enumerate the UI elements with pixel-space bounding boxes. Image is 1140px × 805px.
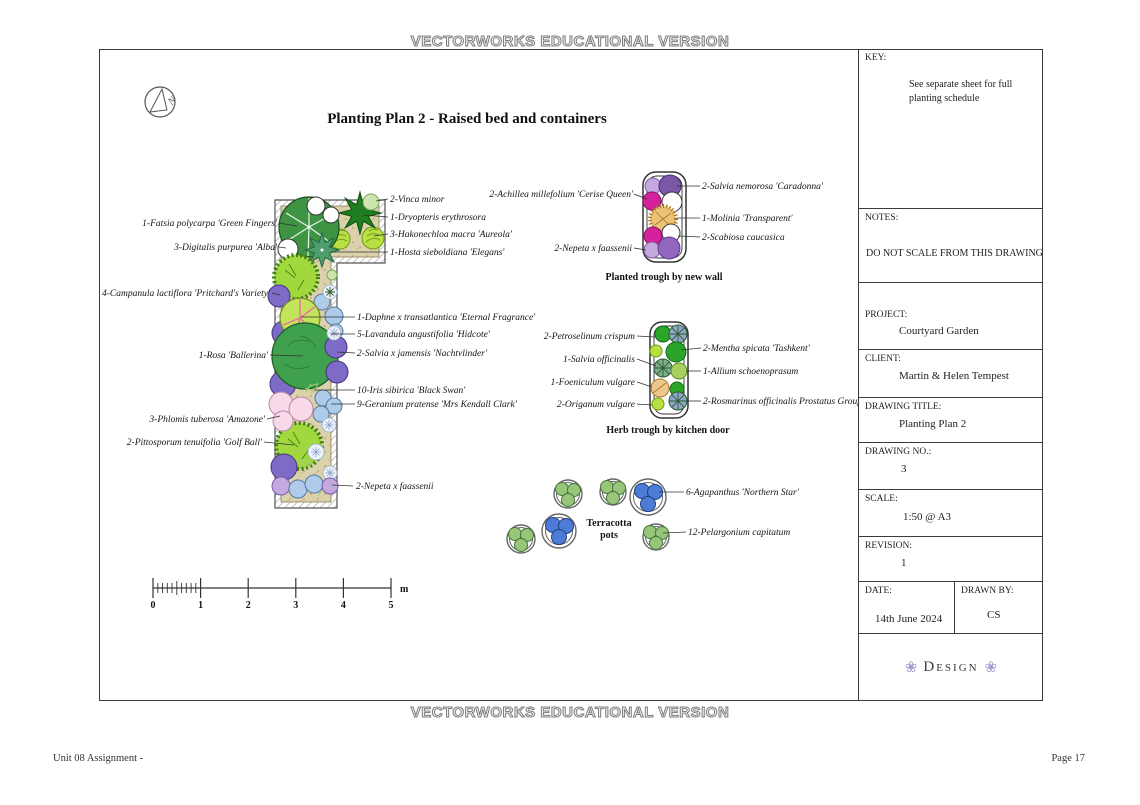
terracotta-pots xyxy=(507,479,669,553)
herb-trough xyxy=(650,322,688,418)
flower-icon-right: ❀ xyxy=(985,658,998,677)
label-salvia-officinalis: 1-Salvia officinalis xyxy=(563,354,635,365)
revision-value: 1 xyxy=(901,557,907,569)
pots-caption-line1: Terracotta xyxy=(586,518,631,529)
label-rosa: 1-Rosa 'Ballerina' xyxy=(199,351,269,361)
label-allium: 1-Allium schoenoprasum xyxy=(703,367,798,377)
label-hakonechloa: 3-Hakonechloa macra 'Aureola' xyxy=(389,230,513,240)
label-salvia-jamensis: 2-Salvia x jamensis 'Nachtvlinder' xyxy=(357,349,488,359)
scale-tick-5: 5 xyxy=(389,600,394,611)
scale-tick-4: 4 xyxy=(341,600,346,611)
scale-bar xyxy=(153,578,391,598)
north-arrow-icon: N xyxy=(145,87,180,117)
title-block-key-cell: KEY: See separate sheet for full plantin… xyxy=(859,49,1043,209)
title-block-drawing-title-cell: DRAWING TITLE: Planting Plan 2 xyxy=(859,398,1043,443)
title-block-project-cell: PROJECT: Courtyard Garden xyxy=(859,283,1043,350)
footer-page-number: Page 17 xyxy=(1051,753,1085,764)
label-daphne: 1-Daphne x transatlantica 'Eternal Fragr… xyxy=(357,313,536,323)
label-hosta: 1-Hosta sieboldiana 'Elegans' xyxy=(390,248,505,258)
label-pittosporum: 2-Pittosporum tenuifolia 'Golf Ball' xyxy=(127,437,263,448)
label-campanula: 4-Campanula lactiflora 'Pritchard's Vari… xyxy=(102,288,271,299)
label-agapanthus: 6-Agapanthus 'Northern Star' xyxy=(686,488,800,498)
pot-blue-1 xyxy=(630,479,666,515)
drawn-by-value: CS xyxy=(987,609,1000,621)
drawing-title-value: Planting Plan 2 xyxy=(899,418,966,430)
vectorworks-watermark-bottom: VECTORWORKS EDUCATIONAL VERSION xyxy=(0,704,1140,721)
trough-wall-caption: Planted trough by new wall xyxy=(605,272,722,283)
scale-unit: m xyxy=(400,584,409,595)
label-salvia-nemorosa: 2-Salvia nemorosa 'Caradonna' xyxy=(702,182,824,192)
pots-caption-line2: pots xyxy=(600,530,618,541)
label-digitalis: 3-Digitalis purpurea 'Alba' xyxy=(173,243,278,253)
foeniculum-circle xyxy=(651,379,669,397)
label-foeniculum: 1-Foeniculum vulgare xyxy=(551,378,635,388)
title-block: KEY: See separate sheet for full plantin… xyxy=(858,49,1043,701)
title-block-date-cell: DATE: 14th June 2024 DRAWN BY: CS xyxy=(859,582,1043,634)
notes-text: DO NOT SCALE FROM THIS DRAWING xyxy=(866,248,1043,259)
plan-drawing: Planting Plan 2 - Raised bed and contain… xyxy=(99,49,858,701)
drawn-by-label: DRAWN BY: xyxy=(961,586,1013,596)
notes-label: NOTES: xyxy=(865,213,898,223)
salvia-officinalis-seg xyxy=(654,359,672,377)
pot-blue-2 xyxy=(542,514,576,548)
drawing-title-label: DRAWING TITLE: xyxy=(865,402,941,412)
key-label: KEY: xyxy=(865,53,886,63)
label-mentha: 2-Mentha spicata 'Tashkent' xyxy=(703,344,811,354)
drawing-no-label: DRAWING NO.: xyxy=(865,447,931,457)
drawing-no-value: 3 xyxy=(901,463,907,475)
sheet-page: VECTORWORKS EDUCATIONAL VERSION VECTORWO… xyxy=(0,0,1140,805)
scale-tick-0: 0 xyxy=(151,600,156,611)
footer-assignment-text: Unit 08 Assignment - xyxy=(53,753,143,764)
key-text-line1: See separate sheet for full xyxy=(909,79,1012,90)
label-achillea: 2-Achillea millefolium 'Cerise Queen' xyxy=(489,189,634,200)
label-rosmarinus: 2-Rosmarinus officinalis Prostatus Group xyxy=(703,396,858,407)
plan-title: Planting Plan 2 - Raised bed and contain… xyxy=(327,111,607,127)
title-block-client-cell: CLIENT: Martin & Helen Tempest xyxy=(859,350,1043,398)
label-petroselinum: 2-Petroselinum crispum xyxy=(544,332,635,342)
label-vinca: 2-Vinca minor xyxy=(390,195,445,205)
label-lavandula: 5-Lavandula angustifolia 'Hidcote' xyxy=(357,329,491,340)
label-geranium: 9-Geranium pratense 'Mrs Kendall Clark' xyxy=(357,400,518,410)
vectorworks-watermark-top: VECTORWORKS EDUCATIONAL VERSION xyxy=(0,33,1140,50)
scale-value: 1:50 @ A3 xyxy=(903,511,951,523)
revision-label: REVISION: xyxy=(865,541,912,551)
label-dryopteris: 1-Dryopteris erythrosora xyxy=(390,213,486,223)
pot-green-1 xyxy=(554,480,582,508)
herb-trough-caption: Herb trough by kitchen door xyxy=(606,425,730,436)
key-text-line2: planting schedule xyxy=(909,93,979,104)
label-nepeta-bed: 2-Nepeta x faassenii xyxy=(356,481,434,492)
label-molinia: 1-Molinia 'Transparent' xyxy=(702,214,794,224)
label-origanum: 2-Origanum vulgare xyxy=(557,400,635,410)
label-nepeta-trough: 2-Nepeta x faassenii xyxy=(554,243,632,254)
label-fatsia: 1-Fatsia polycarpa 'Green Fingers' xyxy=(142,219,278,229)
title-block-revision-cell: REVISION: 1 xyxy=(859,537,1043,582)
label-iris: 10-Iris sibirica 'Black Swan' xyxy=(357,386,466,396)
rosmarinus-circle-seg xyxy=(669,392,687,410)
pot-green-4 xyxy=(643,524,669,550)
flower-icon-left: ❀ xyxy=(905,658,918,677)
project-value: Courtyard Garden xyxy=(899,325,979,337)
label-scabiosa: 2-Scabiosa caucasica xyxy=(702,233,785,243)
pot-green-3 xyxy=(507,525,535,553)
date-value: 14th June 2024 xyxy=(875,613,942,625)
title-block-logo-cell: ❀ Design ❀ xyxy=(859,634,1043,701)
project-label: PROJECT: xyxy=(865,310,907,320)
title-block-drawing-no-cell: DRAWING NO.: 3 xyxy=(859,443,1043,490)
trough-new-wall xyxy=(643,172,686,262)
scale-tick-1: 1 xyxy=(198,600,203,611)
scale-tick-2: 2 xyxy=(246,600,251,611)
pot-green-2 xyxy=(600,479,626,505)
label-pelargonium: 12-Pelargonium capitatum xyxy=(688,528,790,538)
scale-label: SCALE: xyxy=(865,494,898,504)
client-value: Martin & Helen Tempest xyxy=(899,370,1009,382)
scale-tick-3: 3 xyxy=(293,600,298,611)
logo-text: Design xyxy=(923,659,978,676)
mentha-circle-seg xyxy=(669,325,687,343)
date-label: DATE: xyxy=(865,586,892,596)
north-letter: N xyxy=(165,94,180,109)
title-block-scale-cell: SCALE: 1:50 @ A3 xyxy=(859,490,1043,537)
title-block-notes-cell: NOTES: DO NOT SCALE FROM THIS DRAWING xyxy=(859,209,1043,283)
label-phlomis: 3-Phlomis tuberosa 'Amazone' xyxy=(148,415,266,425)
client-label: CLIENT: xyxy=(865,354,901,364)
drawn-by-cell: DRAWN BY: CS xyxy=(954,582,1044,633)
